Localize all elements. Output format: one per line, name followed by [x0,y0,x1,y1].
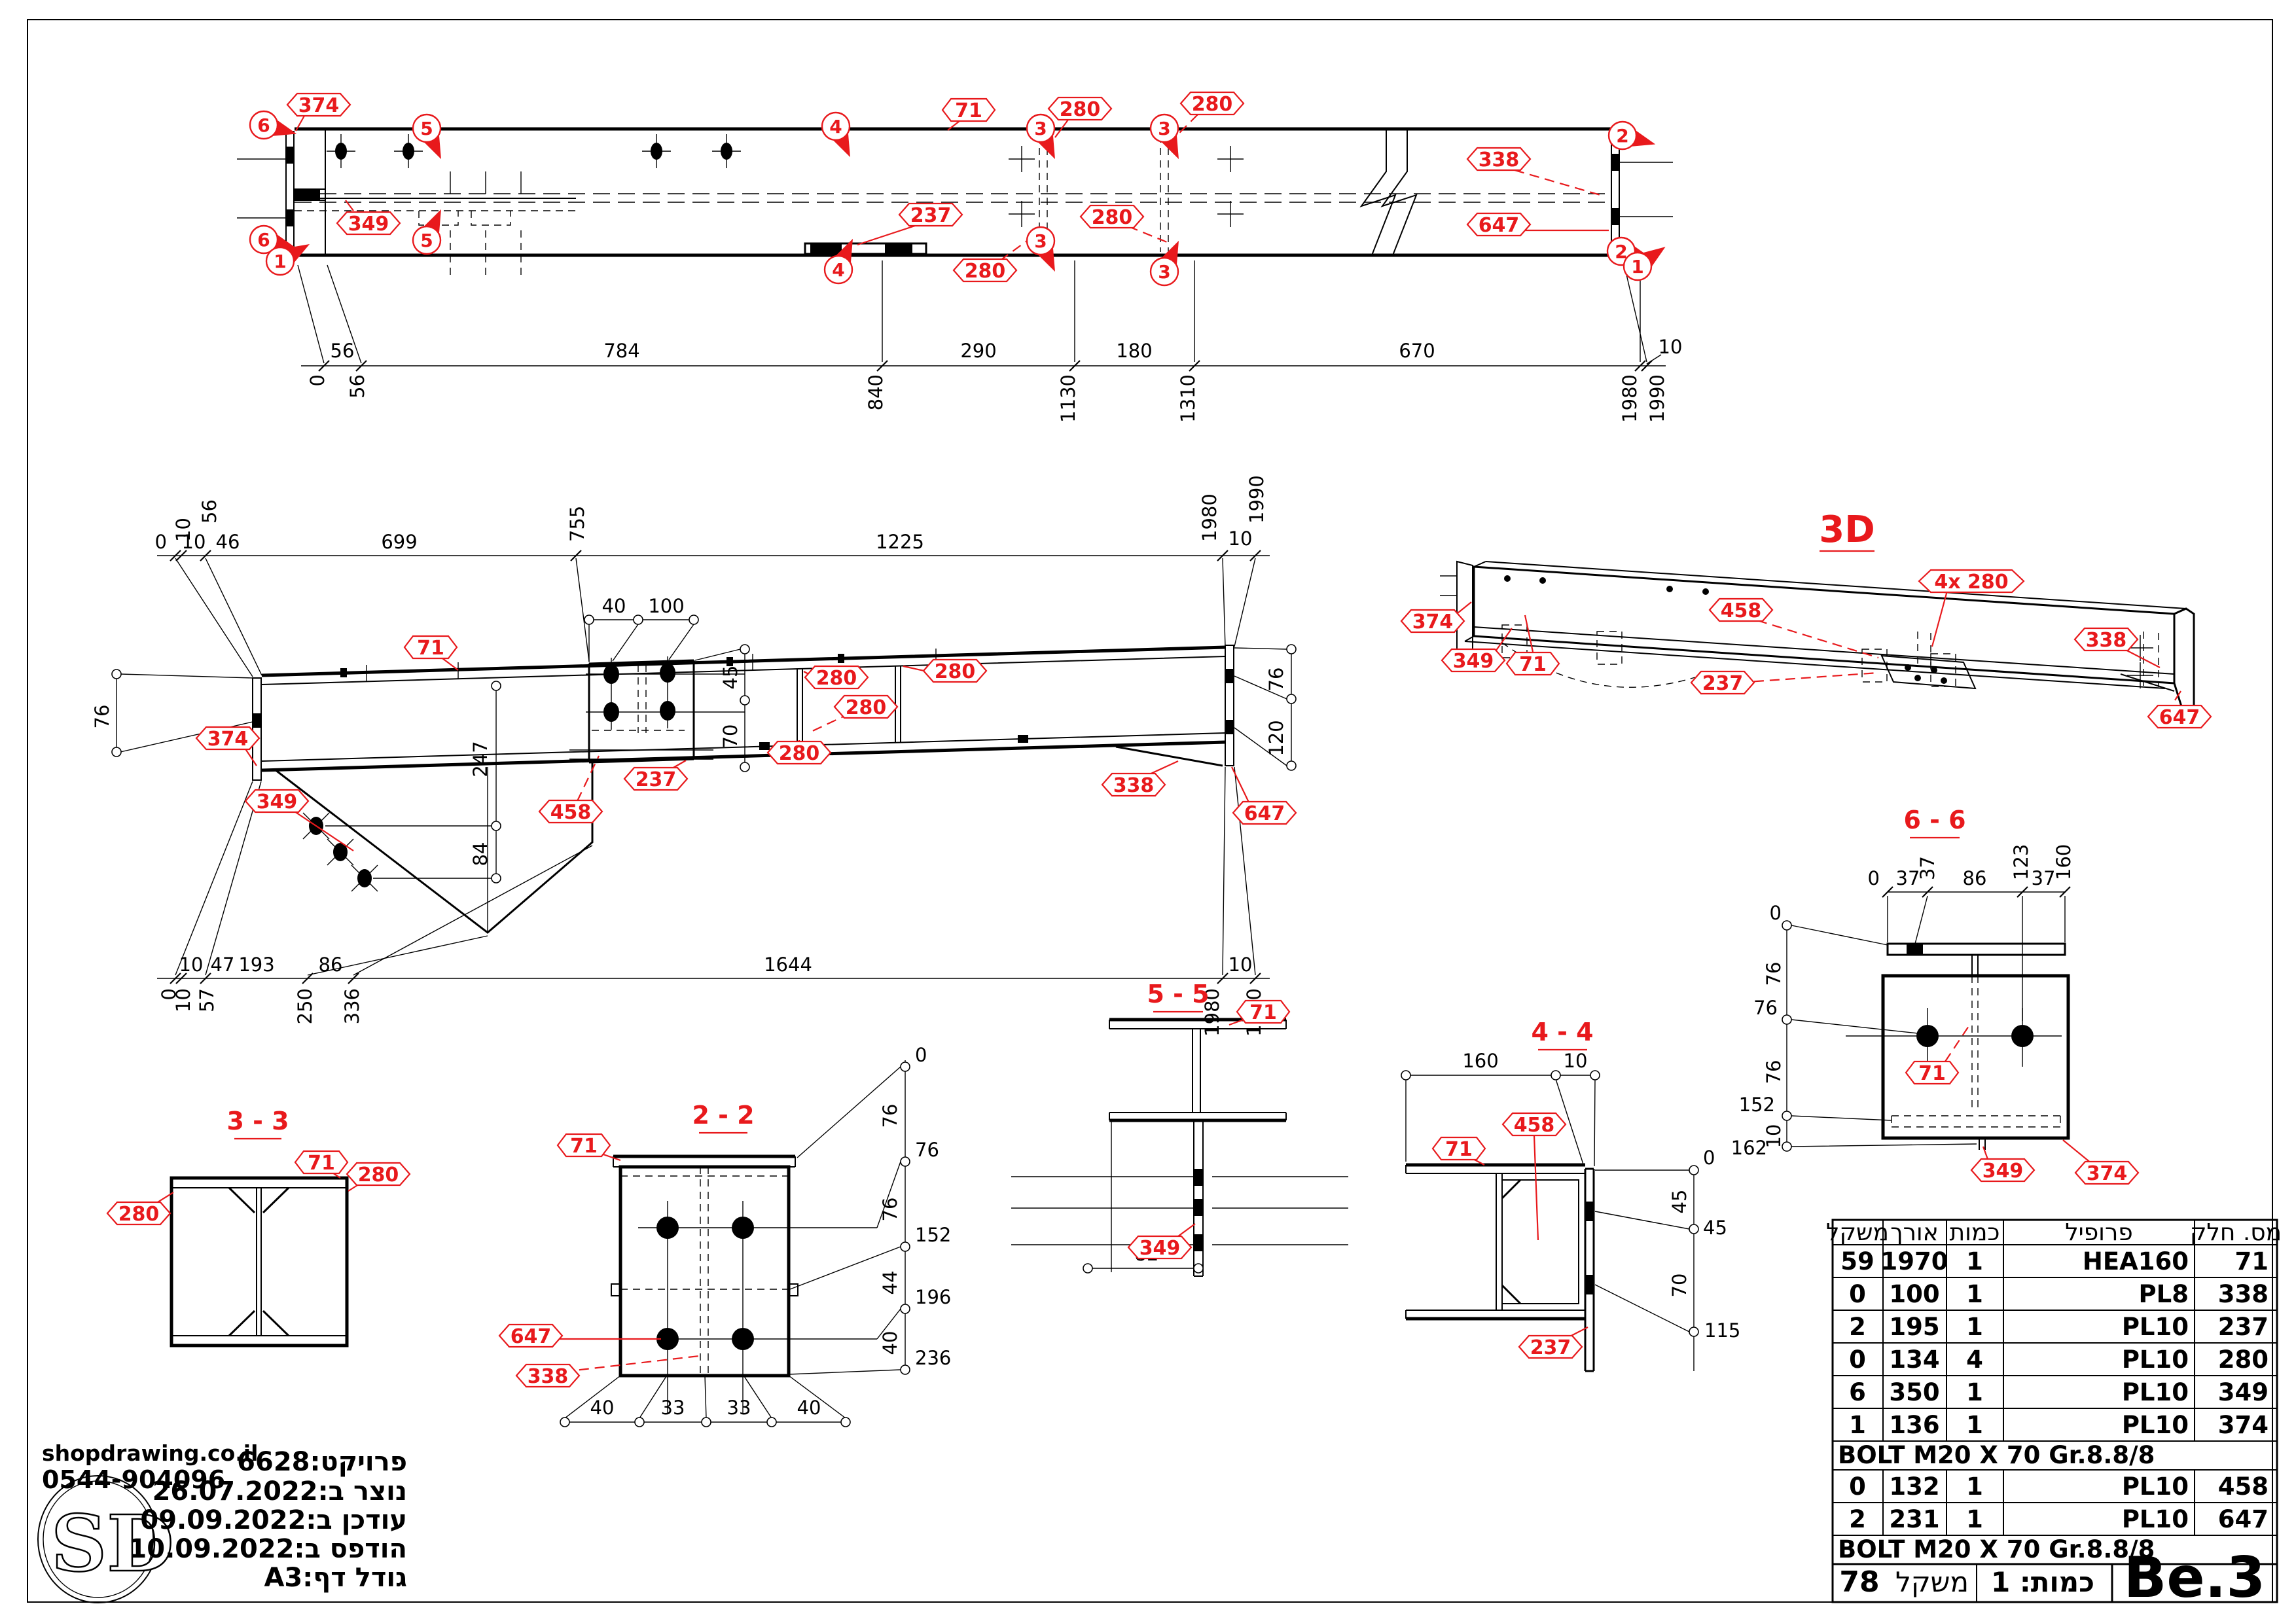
svg-text:338: 338 [1479,149,1520,171]
svg-text:2: 2 [1849,1505,1866,1533]
section-title: 2 - 2 [692,1101,754,1130]
svg-text:647: 647 [511,1325,552,1348]
svg-text:71: 71 [417,637,444,660]
svg-text:71: 71 [1519,653,1547,676]
svg-text:71: 71 [1249,1001,1277,1024]
svg-text:3: 3 [1034,230,1047,252]
callout-237: 237 [1691,671,1754,695]
svg-text:237: 237 [2218,1313,2269,1341]
project-number: פרויקט:6628 [237,1447,407,1477]
dim: 45 [719,666,742,690]
svg-text:1: 1 [1966,1411,1983,1439]
section-flag-2: 2 [1609,122,1658,153]
callout-647: 647 [1467,213,1530,237]
svg-text:71: 71 [570,1135,598,1158]
dim: 40 [879,1331,901,1355]
title-block: shopdrawing.co.il 0544-904096 SD פרויקט:… [38,1440,407,1603]
updated-date: עודכן ב:09.09.2022 [140,1505,407,1535]
dim: 840 [865,374,887,410]
section-4-4: 4 - 4 160 10 0 45 115 45 70 71 458 237 [1401,1018,1740,1371]
dim: 336 [341,988,363,1024]
dim: 37 [2032,867,2056,889]
section-title: 3 - 3 [226,1107,289,1135]
callout-280: 280 [805,666,868,690]
svg-text:1: 1 [1849,1411,1866,1439]
dim: 57 [196,988,218,1012]
dim: 10 [172,988,194,1012]
dim: 699 [381,531,417,553]
section-flag-4: 4 [822,113,859,161]
svg-text:237: 237 [1530,1336,1571,1359]
svg-text:1: 1 [274,251,286,272]
svg-text:338: 338 [528,1365,569,1388]
svg-text:349: 349 [2218,1378,2269,1406]
svg-text:647: 647 [1479,214,1520,237]
section-flag-3: 3 [1151,115,1187,163]
section-2-2: 2 - 2 0 76 152 196 236 76 76 44 40 40 33… [499,1044,951,1427]
dim: 86 [319,954,343,976]
section-3-3: 3 - 3 280 71 280 [107,1107,410,1346]
svg-text:1: 1 [1966,1280,1983,1308]
dim: 70 [1668,1274,1691,1298]
svg-text:4: 4 [1966,1346,1983,1374]
dim: 160 [1462,1050,1498,1072]
dim: 33 [727,1397,751,1419]
table-row: 63501PL10349 [1849,1378,2269,1406]
callout-280: 280 [1049,98,1111,121]
callout-280: 280 [107,1202,170,1226]
callout-338: 338 [2075,628,2138,652]
callout-458: 458 [1503,1113,1566,1137]
dim: 152 [915,1224,951,1246]
callout-237: 237 [624,768,687,791]
svg-text:349: 349 [257,791,298,813]
callout-280: 280 [768,741,831,765]
dim: 56 [198,499,221,524]
dim: 100 [648,595,684,617]
section-title: 4 - 4 [1531,1018,1593,1046]
callout-71: 71 [558,1134,610,1158]
callout-349: 349 [245,790,308,813]
svg-text:4: 4 [829,116,842,137]
col-header-qty: כמות [1950,1219,2000,1246]
svg-text:647: 647 [1244,802,1285,825]
svg-text:338: 338 [1113,774,1155,797]
dim: 44 [879,1271,901,1295]
vendor-site: shopdrawing.co.il [42,1440,258,1466]
dim: 755 [566,506,588,542]
svg-text:338: 338 [2086,629,2127,652]
quantity-text: כמות: 1 [1991,1566,2094,1598]
svg-text:374: 374 [2087,1162,2128,1185]
callout-374: 374 [1401,610,1464,633]
svg-text:2: 2 [1849,1313,1866,1341]
callout-71: 71 [1237,1001,1289,1024]
dim: 46 [216,531,240,553]
svg-text:280: 280 [118,1203,160,1226]
svg-text:2: 2 [1616,125,1628,147]
dim: 1990 [1246,475,1268,524]
svg-text:237: 237 [910,204,952,227]
callout-237: 237 [899,204,962,227]
svg-text:647: 647 [2218,1505,2269,1533]
svg-text:350: 350 [1889,1378,1939,1406]
dim: 70 [719,724,742,749]
dim: 56 [346,374,368,399]
created-date: נוצר ב:26.07.2022 [152,1476,407,1507]
callout-71: 71 [1433,1137,1485,1161]
dim: 196 [915,1286,951,1308]
section-flag-3: 3 [1151,237,1187,285]
dim: 76 [879,1198,901,1222]
dim: 784 [603,340,639,362]
callout-458: 458 [1710,599,1772,622]
dim: 290 [960,340,996,362]
table-row: 01321PL10458 [1849,1472,2269,1501]
svg-text:6: 6 [257,229,270,251]
svg-text:280: 280 [816,667,857,690]
section-flag-4: 4 [825,235,861,283]
svg-text:71: 71 [308,1152,335,1175]
dim: 0 [1703,1147,1715,1169]
dim: 10 [1229,954,1253,976]
callout-374: 374 [287,94,350,117]
dim: 76 [1763,962,1785,986]
svg-text:PL10: PL10 [2122,1505,2189,1533]
svg-text:4: 4 [832,259,844,281]
callout-280: 280 [924,660,986,683]
svg-text:1: 1 [1966,1378,1983,1406]
svg-text:PL8: PL8 [2139,1280,2189,1308]
dim: 56 [331,340,355,362]
dim: 1644 [764,954,812,976]
drawing-canvas: 56 784 290 180 670 10 0 56 840 1130 1310… [0,0,2296,1623]
svg-text:PL10: PL10 [2122,1378,2189,1406]
callout-71: 71 [404,636,457,660]
dim: 37 [1916,856,1939,880]
dim: 193 [238,954,274,976]
svg-text:1: 1 [1966,1505,1983,1533]
callout-338: 338 [516,1364,579,1388]
svg-text:280: 280 [965,260,1006,283]
callout-349: 349 [1128,1236,1191,1260]
svg-text:PL10: PL10 [2122,1346,2189,1374]
table-row: 22311PL10647 [1849,1505,2269,1533]
svg-text:3: 3 [1158,261,1170,283]
total-weight-value: 78 [1839,1565,1879,1599]
parts-table: משקל אורך כמות פרופיל מס. חלק 5919701HEA… [1826,1219,2282,1611]
svg-text:458: 458 [2218,1472,2269,1501]
svg-text:349: 349 [348,213,389,236]
svg-text:374: 374 [207,728,249,751]
dim: 76 [879,1104,901,1128]
dim: 86 [1963,867,1987,889]
svg-text:1970: 1970 [1881,1247,1948,1275]
svg-text:349: 349 [1139,1237,1181,1260]
dim: 115 [1704,1319,1740,1342]
dim: 1980 [1198,493,1221,542]
svg-text:PL10: PL10 [2122,1472,2189,1501]
dim: 180 [1116,340,1152,362]
svg-text:458: 458 [1514,1114,1555,1137]
svg-text:5: 5 [420,118,433,139]
svg-text:237: 237 [1702,672,1744,695]
svg-text:71: 71 [1918,1062,1946,1085]
svg-text:280: 280 [1192,93,1233,116]
svg-text:280: 280 [846,696,887,719]
assembly-code: Be.3 [2124,1545,2265,1611]
svg-text:338: 338 [2218,1280,2269,1308]
dim: 250 [294,988,316,1024]
callout-349: 349 [1442,649,1505,673]
svg-text:280: 280 [2218,1346,2269,1374]
callout-237: 237 [1519,1336,1582,1359]
dim: 123 [2010,844,2032,880]
svg-text:1: 1 [1631,256,1643,277]
svg-text:132: 132 [1889,1472,1939,1501]
dim: 76 [1763,1060,1785,1084]
svg-text:237: 237 [636,768,677,791]
top-view-dimensions: 56 784 290 180 670 10 0 56 840 1130 1310… [298,259,1682,423]
side-view-top-dims: 0 10 46 699 1225 10 10 56 755 1980 1990 [155,475,1270,677]
svg-text:1: 1 [1966,1472,1983,1501]
callout-71: 71 [942,99,995,122]
bolt-note: BOLT M20 X 70 Gr.8.8/8 [1838,1441,2155,1469]
dim: 1990 [1646,374,1668,423]
svg-text:100: 100 [1889,1280,1939,1308]
callout-280: 280 [1181,92,1244,116]
svg-text:374: 374 [1412,611,1454,633]
dim: 45 [1668,1190,1691,1214]
svg-text:280: 280 [1092,206,1133,229]
svg-text:0: 0 [1849,1346,1866,1374]
callout-647: 647 [2148,705,2211,729]
svg-text:71: 71 [1445,1138,1473,1161]
dim: 0 [1868,867,1880,889]
callout-647: 647 [499,1325,562,1348]
section-flag-5: 5 [413,115,450,163]
section-5-5: 5 - 5 82 71 349 [1011,980,1348,1276]
dim: 10 [1229,527,1253,550]
svg-text:PL10: PL10 [2122,1313,2189,1341]
svg-text:71: 71 [2235,1247,2269,1275]
callout-374: 374 [2075,1162,2138,1185]
callout-647: 647 [1233,802,1296,825]
dim: 1130 [1057,374,1079,423]
col-header-length: אורך [1890,1219,1939,1246]
view-3d: 3D 374 349 71 458 237 4x 280 338 647 [1401,508,2211,729]
svg-text:280: 280 [935,660,976,683]
svg-text:195: 195 [1889,1313,1939,1341]
svg-text:231: 231 [1889,1505,1939,1533]
printed-date: הודפס ב:10.09.2022 [128,1534,407,1564]
dim: 76 [91,705,113,729]
svg-text:6: 6 [257,115,270,136]
callout-280: 280 [347,1163,410,1186]
svg-text:374: 374 [2218,1411,2269,1439]
section-6-6: 6 - 6 0 37 86 37 37 123 160 0 76 152 162… [1731,806,2138,1185]
dim: 152 [1739,1094,1775,1116]
svg-text:647: 647 [2159,706,2200,729]
callout-374: 374 [196,727,259,751]
svg-text:458: 458 [550,801,592,824]
dim: 76 [1753,997,1778,1019]
svg-text:349: 349 [1982,1160,2024,1183]
total-weight-label: משקל [1895,1566,1969,1598]
svg-text:374: 374 [298,94,340,117]
dim: 40 [797,1397,821,1419]
col-header-part: מס. חלק [2190,1219,2282,1246]
callout-71: 71 [1507,652,1559,676]
callout-349: 349 [337,212,400,236]
dim: 10 [1564,1050,1588,1072]
svg-text:HEA160: HEA160 [2083,1247,2189,1275]
dim: 76 [915,1139,939,1161]
svg-text:280: 280 [779,742,820,765]
dim: 76 [1265,668,1287,692]
table-row: 21951PL10237 [1849,1313,2269,1341]
svg-text:0: 0 [1849,1472,1866,1501]
dim: 45 [1703,1217,1727,1239]
callout-458: 458 [539,800,602,824]
svg-text:5: 5 [420,230,433,251]
dim: 162 [1731,1137,1767,1159]
dim: 40 [602,595,626,617]
table-row: 11361PL10374 [1849,1411,2269,1439]
callout-338: 338 [1467,148,1530,171]
drawing-sheet: 56 784 290 180 670 10 0 56 840 1130 1310… [0,0,2296,1623]
col-header-weight: משקל [1826,1219,1889,1246]
section-flag-6: 6 [250,111,299,143]
callout-280: 280 [1081,205,1143,229]
view-3d-title: 3D [1819,508,1874,551]
svg-text:3: 3 [1158,118,1170,139]
section-title: 6 - 6 [1903,806,1965,834]
svg-text:280: 280 [1060,98,1101,121]
svg-text:6: 6 [1849,1378,1866,1406]
svg-text:280: 280 [358,1164,399,1186]
endplate-bolts [638,1201,877,1414]
svg-text:71: 71 [955,99,982,122]
bolt-marks-plan [327,134,741,168]
dim: 1310 [1177,374,1199,423]
svg-text:3: 3 [1034,118,1047,139]
dim: 10 [1763,1124,1785,1149]
svg-text:349: 349 [1453,650,1494,673]
col-header-profile: פרופיל [2065,1219,2133,1246]
gusset-bolts [303,813,496,891]
callout-71: 71 [295,1151,348,1175]
callout-71: 71 [1906,1061,1958,1085]
dim: 120 [1265,720,1287,756]
dim: 670 [1399,340,1435,362]
dim: 10 [172,518,194,542]
dim: 1980 [1619,374,1641,423]
svg-text:59: 59 [1840,1247,1874,1275]
callout-338: 338 [1102,774,1165,797]
table-row: 5919701HEA16071 [1840,1247,2269,1275]
svg-text:PL10: PL10 [2122,1411,2189,1439]
table-row: 01001PL8338 [1849,1280,2269,1308]
dim: 0 [1770,902,1782,924]
table-row: 01344PL10280 [1849,1346,2269,1374]
dim: 1225 [876,531,924,553]
dim: 236 [915,1347,951,1369]
callout-349: 349 [1971,1159,2034,1183]
section-flag-3: 3 [1027,227,1064,276]
callout-4x280: 4x 280 [1919,570,2024,594]
bolt-note: BOLT M20 X 70 Gr.8.8/8 [1838,1535,2155,1563]
section-flag-3: 3 [1027,115,1064,163]
dim: 0 [155,531,167,553]
dim: 10 [179,954,204,976]
dim: 47 [211,954,235,976]
dim: 0 [915,1044,927,1066]
svg-text:136: 136 [1889,1411,1939,1439]
dim: 160 [2053,844,2075,880]
dim: 0 [306,374,329,386]
dim: 84 [469,842,492,866]
svg-text:4x 280: 4x 280 [1934,571,2008,594]
dim: 33 [661,1397,685,1419]
dim: 247 [469,741,492,777]
callout-280: 280 [834,696,897,719]
section-title: 5 - 5 [1147,980,1209,1008]
svg-text:0: 0 [1849,1280,1866,1308]
svg-text:458: 458 [1721,599,1762,622]
svg-text:1: 1 [1966,1247,1983,1275]
svg-text:1: 1 [1966,1313,1983,1341]
dim: 10 [1659,336,1683,358]
svg-text:134: 134 [1889,1346,1939,1374]
dim: 40 [590,1397,615,1419]
page-size: גודל דף:A3 [264,1563,407,1593]
side-view: 247 84 40 100 45 70 76 120 [91,475,1296,1037]
callout-280: 280 [954,259,1016,283]
